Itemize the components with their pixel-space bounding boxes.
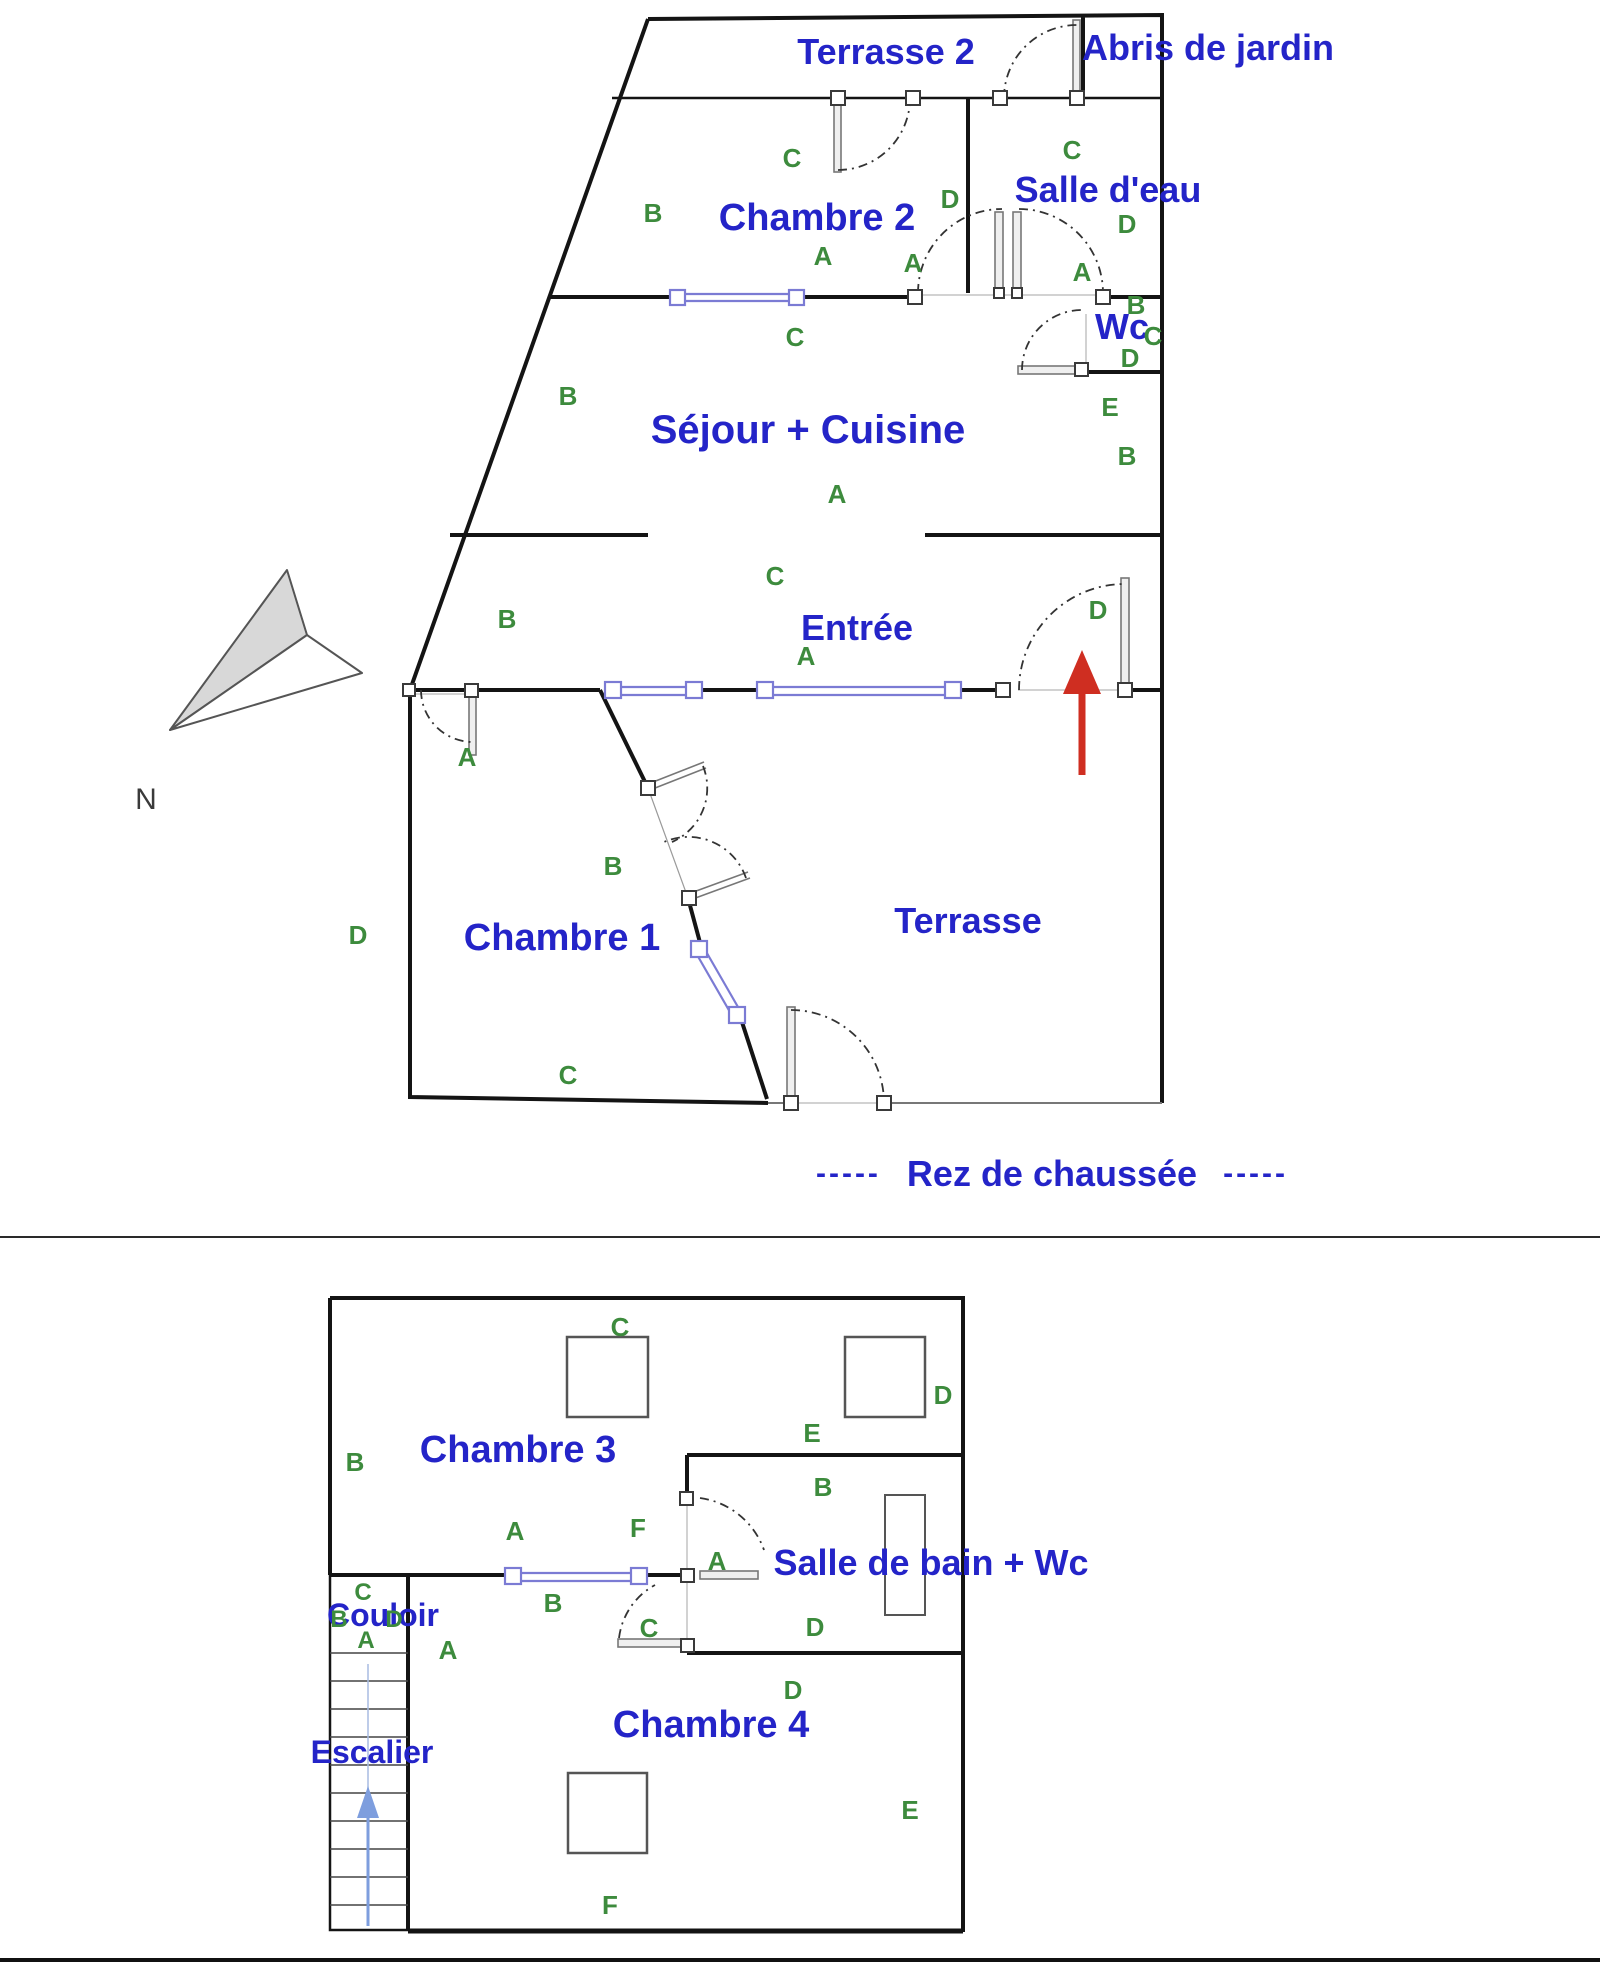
wall-marker: C	[611, 1314, 630, 1340]
wall-marker: A	[1073, 259, 1092, 285]
room-label-sejour-cuisine: Séjour + Cuisine	[651, 410, 966, 450]
room-label-chambre-1: Chambre 1	[464, 919, 660, 957]
wall-marker: A	[797, 643, 816, 669]
wall-marker: A	[357, 1629, 374, 1653]
room-label-terrasse-2: Terrasse 2	[797, 34, 974, 70]
wall-marker: E	[901, 1797, 918, 1823]
wall-marker: C	[783, 145, 802, 171]
wall-marker: C	[1063, 137, 1082, 163]
wall-marker: C	[354, 1581, 371, 1605]
wall-marker: B	[1127, 292, 1146, 318]
wall-marker: D	[1118, 211, 1137, 237]
wall-marker: F	[602, 1892, 618, 1918]
floor-plan-drawing	[0, 0, 1600, 1968]
wall-marker: C	[1144, 323, 1163, 349]
wall-marker: E	[803, 1420, 820, 1446]
wall-marker: B	[604, 853, 623, 879]
room-label-salle-de-bain-wc: Salle de bain + Wc	[773, 1545, 1088, 1581]
wall-marker: A	[904, 250, 923, 276]
wall-marker: A	[439, 1637, 458, 1663]
wall-marker: B	[644, 200, 663, 226]
room-label-salle-deau: Salle d'eau	[1015, 172, 1202, 208]
wall-marker: B	[1118, 443, 1137, 469]
wall-marker: A	[814, 243, 833, 269]
room-label-chambre-2: Chambre 2	[719, 199, 915, 237]
floor-plan-page: Terrasse 2 Abris de jardin Chambre 2 Sal…	[0, 0, 1600, 1968]
wall-marker: D	[784, 1677, 803, 1703]
room-label-terrasse: Terrasse	[894, 903, 1041, 939]
wall-marker: C	[559, 1062, 578, 1088]
wall-marker: C	[766, 563, 785, 589]
level-separator	[0, 1237, 1600, 1960]
room-label-entree: Entrée	[801, 610, 913, 646]
wall-marker: A	[828, 481, 847, 507]
stair-direction-arrow	[357, 1664, 379, 1926]
entry-direction-arrow	[1063, 650, 1101, 775]
wall-marker: B	[346, 1449, 365, 1475]
wall-marker: A	[458, 744, 477, 770]
wall-marker: C	[640, 1615, 659, 1641]
wall-marker: B	[559, 383, 578, 409]
room-label-abris-de-jardin: Abris de jardin	[1082, 30, 1334, 66]
wall-marker: B	[330, 1608, 347, 1632]
wall-marker: D	[385, 1608, 402, 1632]
wall-marker: F	[630, 1515, 646, 1541]
wall-marker: D	[1089, 597, 1108, 623]
caption-right-dashes: -----	[1223, 1157, 1288, 1191]
wall-marker: B	[498, 606, 517, 632]
wall-marker: D	[941, 186, 960, 212]
north-compass-icon	[170, 570, 362, 730]
room-label-chambre-4: Chambre 4	[613, 1706, 809, 1744]
wall-marker: A	[506, 1518, 525, 1544]
wall-marker: D	[1121, 345, 1140, 371]
north-label: N	[135, 785, 157, 815]
room-label-escalier: Escalier	[311, 1736, 434, 1768]
wall-marker: D	[806, 1614, 825, 1640]
upper-windows	[505, 1568, 647, 1584]
caption-title: Rez de chaussée	[907, 1153, 1197, 1195]
wall-marker: B	[814, 1474, 833, 1500]
wall-marker: B	[544, 1590, 563, 1616]
wall-marker: D	[349, 922, 368, 948]
ground-floor-plan	[170, 15, 1162, 1110]
ground-floor-caption: ----- Rez de chaussée -----	[816, 1153, 1288, 1195]
wall-marker: A	[708, 1548, 727, 1574]
room-label-chambre-3: Chambre 3	[420, 1431, 616, 1469]
wall-marker: D	[934, 1382, 953, 1408]
caption-left-dashes: -----	[816, 1157, 881, 1191]
skylight-windows	[567, 1337, 925, 1853]
wall-marker: E	[1101, 394, 1118, 420]
wall-marker: C	[786, 324, 805, 350]
